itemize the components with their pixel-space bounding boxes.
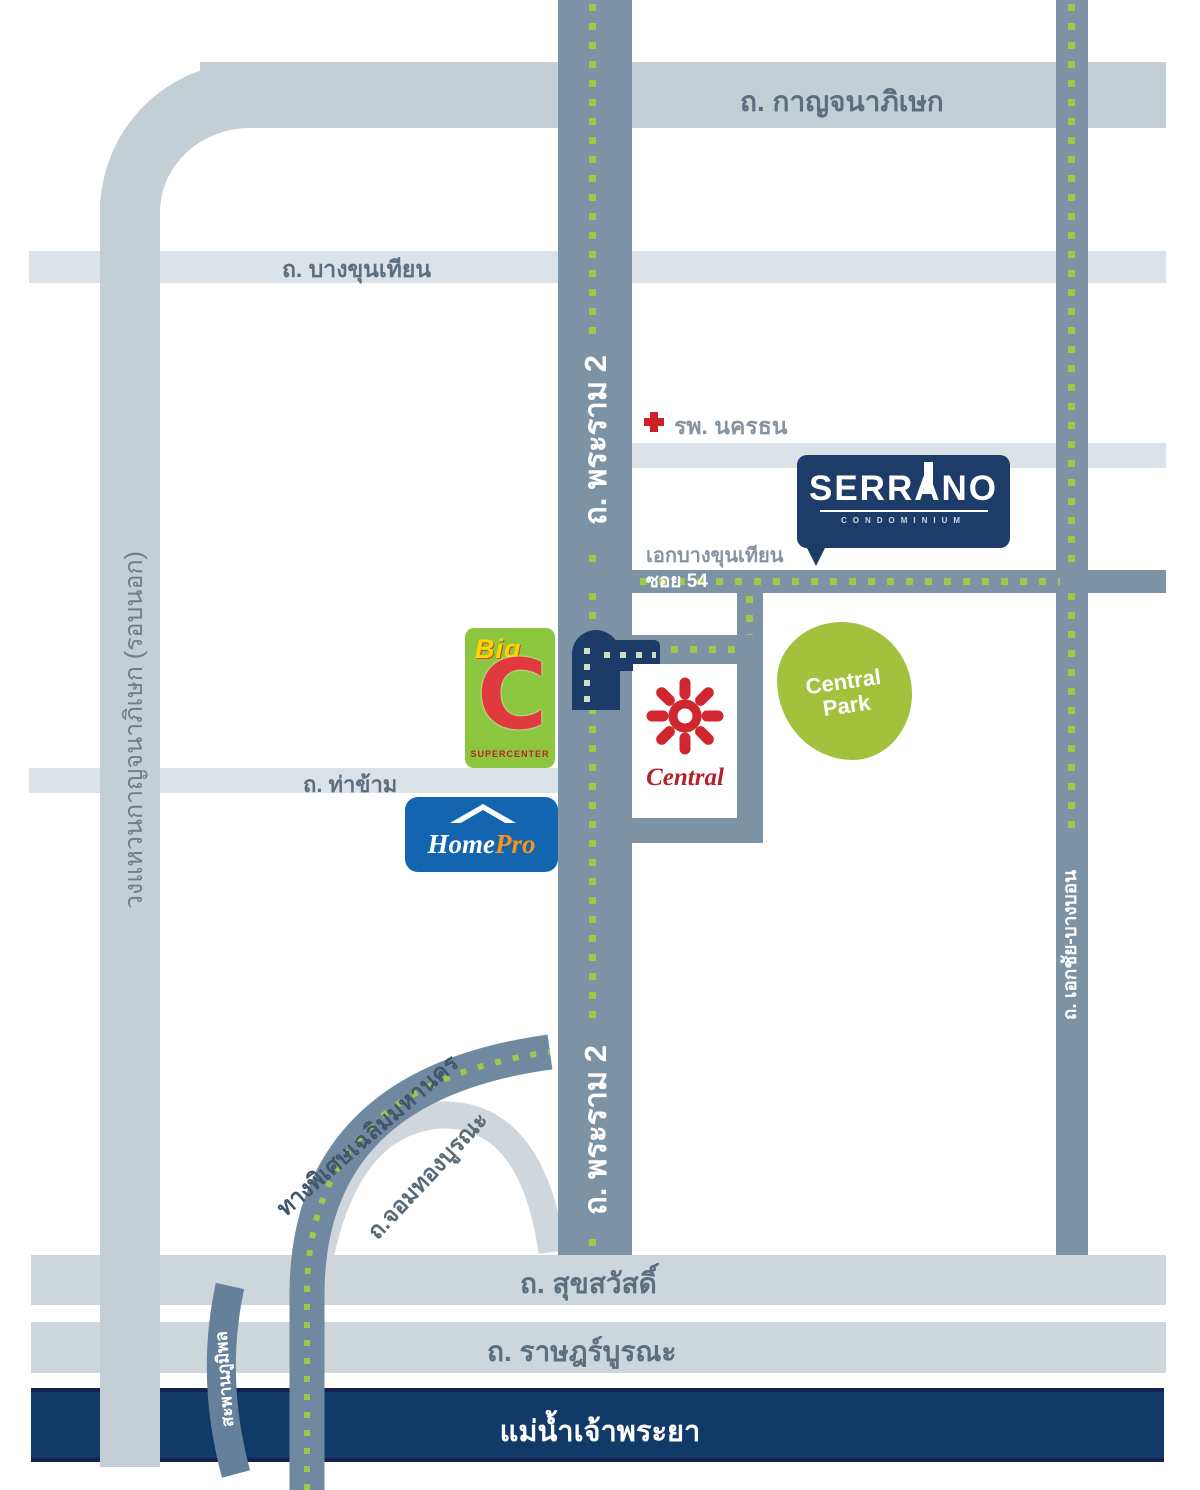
serrano-marker: SERRANO CONDOMINIUM <box>797 455 1010 548</box>
label-ratburana: ถ. ราษฎร์บูรณะ <box>487 1330 676 1374</box>
serrano-name: SERRANO <box>797 471 1010 507</box>
hospital-cross-icon <box>644 412 664 432</box>
serrano-building-icon <box>924 462 933 494</box>
homepro-roof-inner <box>459 810 507 824</box>
central-park-label: Central Park <box>797 664 893 724</box>
central-wordmark: Central <box>633 764 737 792</box>
homepro-pro-text: Pro <box>495 829 536 859</box>
label-chao-phraya-river: แม่น้ำเจ้าพระยา <box>480 1408 720 1454</box>
map-canvas: ถ. กาญจนาภิเษก ถ. บางขุนเทียน ถ. ท่าข้าม… <box>0 0 1200 1490</box>
label-kanchanaphisek: ถ. กาญจนาภิเษก <box>740 80 944 124</box>
label-suksawat: ถ. สุขสวัสดิ์ <box>520 1262 657 1306</box>
serrano-subtitle: CONDOMINIUM <box>797 516 1010 525</box>
central-block: Central <box>633 664 737 818</box>
label-hospital: รพ. นครธน <box>674 409 788 445</box>
label-outer-ring: วงแหวนกาญจนาภิเษก (รอบนอก) <box>114 420 144 1040</box>
homepro-home-text: Home <box>428 829 496 859</box>
bigc-supercenter-text: SUPERCENTER <box>465 749 555 759</box>
bigc-logo: Big C SUPERCENTER <box>465 628 555 768</box>
homepro-logo: HomePro <box>405 797 558 872</box>
label-tha-kham: ถ. ท่าข้าม <box>303 767 397 802</box>
serrano-rule <box>820 510 988 512</box>
label-soi54: ซอย 54 <box>646 570 708 593</box>
homepro-wordmark: HomePro <box>405 829 558 860</box>
label-rama2-upper: ถ. พระราม 2 <box>580 335 612 545</box>
label-rama2-lower: ถ. พระราม 2 <box>580 1025 612 1235</box>
serrano-marker-tail <box>806 546 826 566</box>
label-ekkachai-bangbon: ถ. เอกชัย-บางบอน <box>1056 840 1086 1050</box>
label-ek-bang-khun-thian: เอกบางขุนเทียน <box>646 539 783 571</box>
central-emblem-icon <box>645 676 725 756</box>
label-bang-khun-thian: ถ. บางขุนเทียน <box>282 252 431 288</box>
bigc-c-letter: C <box>477 650 547 740</box>
